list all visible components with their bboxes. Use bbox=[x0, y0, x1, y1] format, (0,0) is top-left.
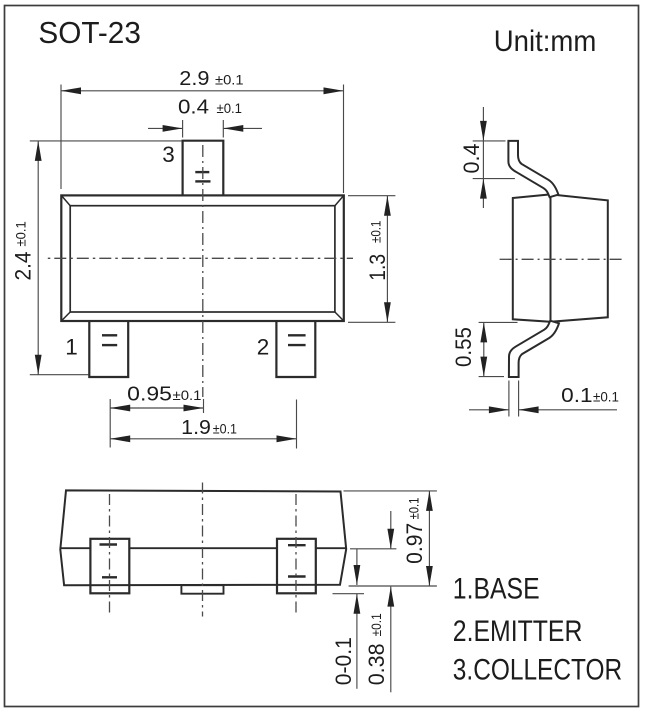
svg-text:3: 3 bbox=[162, 142, 175, 167]
svg-text:Unit:mm: Unit:mm bbox=[494, 25, 597, 58]
svg-text:0.4: 0.4 bbox=[459, 144, 484, 174]
svg-text:±0.1: ±0.1 bbox=[13, 221, 28, 246]
svg-text:2.9: 2.9 bbox=[179, 67, 209, 90]
svg-text:±0.1: ±0.1 bbox=[173, 387, 202, 403]
svg-text:1.3: 1.3 bbox=[365, 254, 390, 281]
svg-text:0-0.1: 0-0.1 bbox=[331, 637, 356, 685]
svg-text:±0.1: ±0.1 bbox=[213, 420, 237, 436]
svg-text:1: 1 bbox=[65, 335, 78, 360]
svg-text:0.97: 0.97 bbox=[402, 523, 427, 564]
svg-text:1.9: 1.9 bbox=[181, 416, 211, 439]
svg-text:±0.1: ±0.1 bbox=[407, 498, 422, 520]
svg-text:±0.1: ±0.1 bbox=[369, 613, 384, 636]
svg-text:SOT-23: SOT-23 bbox=[38, 15, 140, 50]
svg-text:0.4: 0.4 bbox=[178, 96, 209, 119]
svg-text:±0.1: ±0.1 bbox=[215, 71, 244, 87]
svg-text:0.55: 0.55 bbox=[451, 327, 476, 367]
svg-text:±0.1: ±0.1 bbox=[369, 221, 384, 243]
svg-text:±0.1: ±0.1 bbox=[593, 388, 619, 404]
svg-text:0.1: 0.1 bbox=[561, 384, 592, 407]
svg-text:0.38: 0.38 bbox=[364, 643, 389, 685]
svg-text:2: 2 bbox=[257, 335, 270, 360]
svg-text:1.BASE: 1.BASE bbox=[453, 573, 540, 606]
svg-text:2.EMITTER: 2.EMITTER bbox=[453, 615, 583, 648]
svg-text:±0.1: ±0.1 bbox=[217, 100, 243, 116]
svg-text:2.4: 2.4 bbox=[10, 252, 35, 281]
svg-text:3.COLLECTOR: 3.COLLECTOR bbox=[453, 654, 622, 687]
svg-text:0.95: 0.95 bbox=[127, 383, 172, 406]
